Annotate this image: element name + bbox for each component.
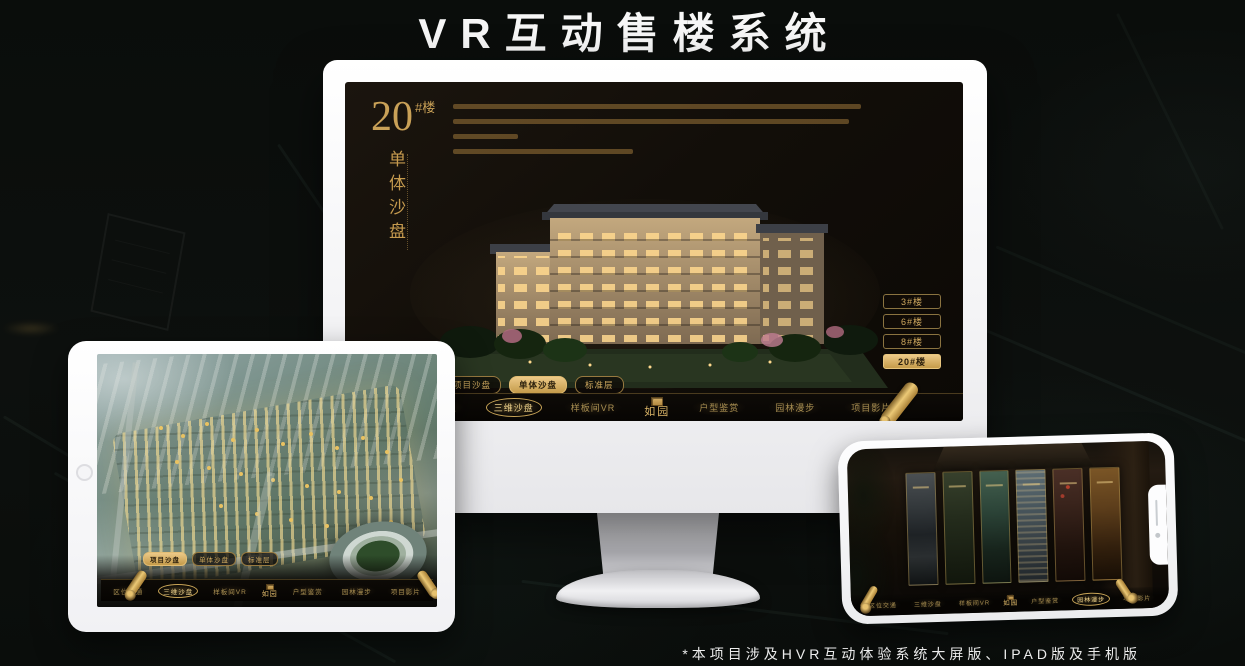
home-button[interactable] [76,464,93,481]
tablet-screen: 项目沙盘 单体沙盘 标准层 区位交通 三维沙盘 样板间VR 如园 户型鉴赏 园林… [97,354,437,607]
building-render-image [400,144,890,394]
gallery-panel-interior[interactable] [905,472,938,586]
floor-button-3[interactable]: 3#楼 [883,294,941,309]
headline-number: 20 [371,94,413,140]
phone-frame: 区位交通 三维沙盘 样板间VR 如园 户型鉴赏 园林漫步 项目影片 [838,432,1179,624]
floor-button-group: 3#楼 6#楼 8#楼 20#楼 [883,294,941,374]
brand-logo-text: 如园 [262,591,278,598]
page-title: VR互动售楼系统 [0,0,1245,61]
camera-notch [1148,484,1168,564]
promo-poster: VR互动售楼系统 20#楼 单体沙盘 [0,0,1245,666]
gallery-panel-courtyard[interactable] [942,471,975,585]
building-render-viewer[interactable] [400,144,890,394]
nav-item-floorplans[interactable]: 户型鉴赏 [289,585,327,597]
footnote-text: *本项目涉及HVR互动体验系统大屏版、IPAD版及手机版 [682,644,1141,664]
section-headline: 20#楼 [371,96,435,138]
nav-item-showroom-vr[interactable]: 样板间VR [564,399,623,416]
nav-item-3d-sandtable[interactable]: 三维沙盘 [486,398,542,417]
nav-item-showroom-vr[interactable]: 样板间VR [209,585,251,597]
floor-button-8[interactable]: 8#楼 [883,334,941,349]
speaker-slit [1155,499,1158,525]
subnav-single-sandtable[interactable]: 单体沙盘 [509,376,567,394]
nav-item-floorplans[interactable]: 户型鉴赏 [692,399,746,416]
subnav-standard-floor[interactable]: 标准层 [241,552,278,566]
nav-item-garden-walk[interactable]: 园林漫步 [338,585,376,597]
phone-screen: 区位交通 三维沙盘 样板间VR 如园 户型鉴赏 园林漫步 项目影片 [847,441,1170,617]
subnav-standard-floor[interactable]: 标准层 [575,376,624,394]
monitor-stand-neck [590,511,726,579]
brand-logo-text: 如园 [644,407,670,418]
subnav-pills: 项目沙盘 单体沙盘 标准层 [143,552,278,566]
brand-logo-text: 如园 [1003,601,1018,608]
nav-item-3d-sandtable[interactable]: 三维沙盘 [910,598,946,610]
seal-icon [266,584,274,590]
nav-item-3d-sandtable[interactable]: 三维沙盘 [158,584,198,598]
gallery-panel-building[interactable] [1016,469,1049,583]
floor-button-6[interactable]: 6#楼 [883,314,941,329]
nav-item-garden-walk[interactable]: 园林漫步 [768,399,822,416]
seal-icon [651,397,663,406]
subnav-single-sandtable[interactable]: 单体沙盘 [192,552,236,566]
nav-item-floorplans[interactable]: 户型鉴赏 [1027,594,1063,606]
subnav-pills: 项目沙盘 单体沙盘 标准层 [443,376,624,394]
brand-logo: 如园 [644,397,670,418]
camera-dot [1155,532,1160,537]
brand-logo: 如园 [262,584,278,598]
building-number-badges [159,426,163,430]
tablet-frame: 项目沙盘 单体沙盘 标准层 区位交通 三维沙盘 样板间VR 如园 户型鉴赏 园林… [68,341,455,632]
interior-ceiling-beam [933,443,1094,471]
headline-suffix: #楼 [415,100,435,115]
bg-gold-mark [2,322,60,335]
bg-faint-sign [90,213,185,331]
nav-item-garden-walk[interactable]: 园林漫步 [1072,592,1110,606]
gallery-panels [905,467,1122,586]
gallery-panel-lanterns[interactable] [1053,468,1086,582]
gallery-panel-lounge[interactable] [1089,467,1122,581]
bg-road-line [996,245,1245,357]
nav-item-showroom-vr[interactable]: 样板间VR [955,596,995,608]
gallery-panel-garden[interactable] [979,470,1012,584]
main-navbar: 区位交通 三维沙盘 样板间VR 如园 户型鉴赏 园林漫步 项目影片 [101,579,433,601]
nav-item-project-film[interactable]: 项目影片 [387,585,425,597]
brand-logo: 如园 [1003,595,1018,608]
floor-button-20[interactable]: 20#楼 [883,354,941,369]
subnav-project-sandtable[interactable]: 项目沙盘 [143,552,187,566]
monitor-stand-base [556,570,760,608]
